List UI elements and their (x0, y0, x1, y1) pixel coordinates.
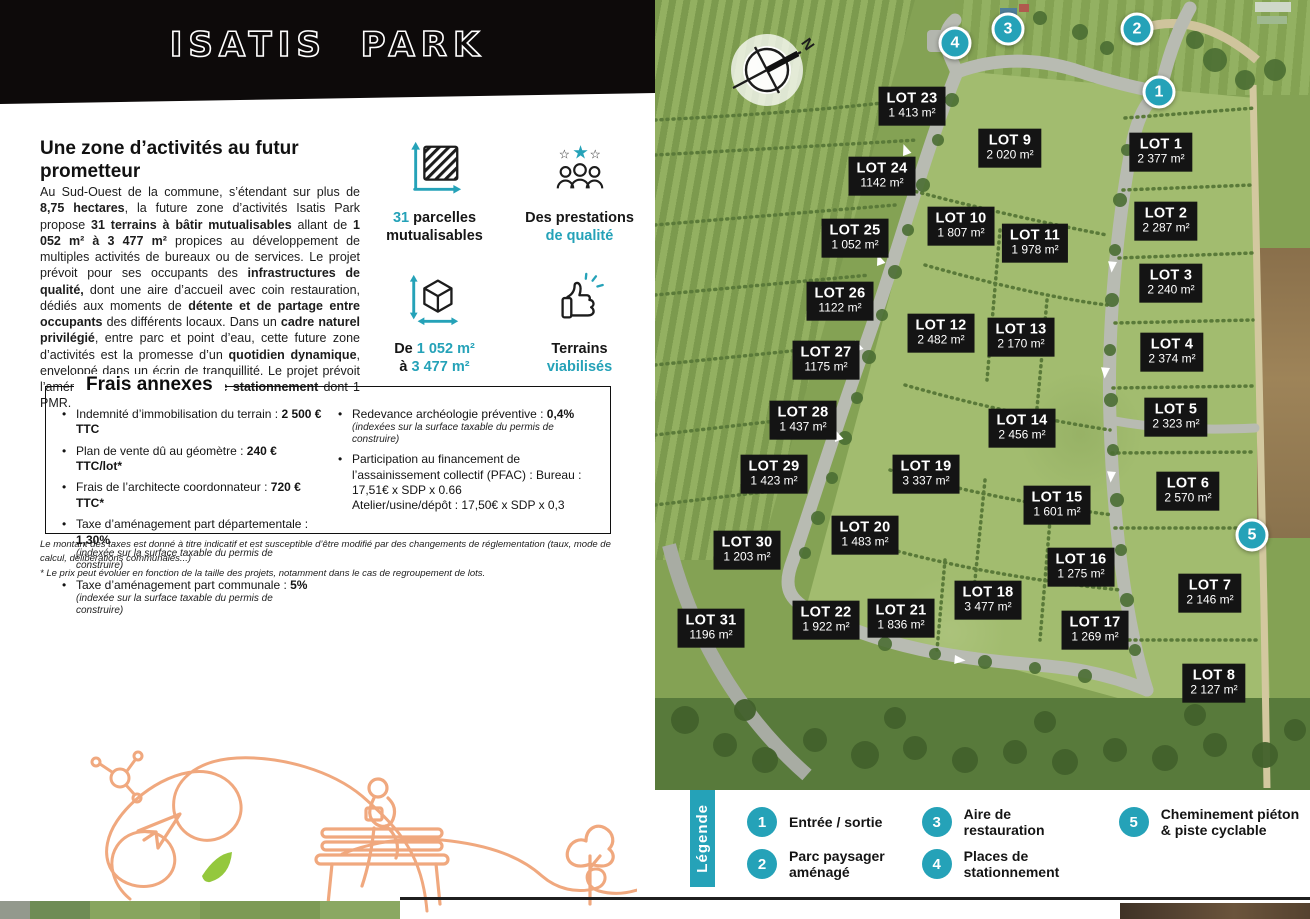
map-marker-3: 3 (992, 13, 1025, 46)
lot-label: LOT 111 978 m² (1002, 224, 1068, 263)
lot-label: LOT 92 020 m² (978, 129, 1041, 168)
intro-heading: Une zone d’activités au futur prometteur (40, 138, 350, 184)
legend: Légende 1Entrée / sortie2Parc paysager a… (655, 790, 1310, 900)
compass-icon: N (731, 34, 817, 106)
lot-label: LOT 101 807 m² (928, 207, 995, 246)
lot-label: LOT 142 456 m² (989, 409, 1056, 448)
page-divider-line (400, 897, 1310, 900)
feature-viabilises: Terrainsviabilisés (511, 271, 648, 376)
fees-box: Frais annexes Indemnité d’immobilisation… (45, 386, 611, 534)
map-marker-2: 2 (1121, 13, 1154, 46)
lot-label: LOT 211 836 m² (868, 599, 935, 638)
legend-item-3: 3Aire de restauration (922, 802, 1083, 842)
disclaimer-line1: Le montant des taxes est donné à titre i… (40, 538, 640, 567)
lot-label: LOT 183 477 m² (955, 581, 1022, 620)
lot-label: LOT 171 269 m² (1062, 611, 1129, 650)
fees-title: Frais annexes (74, 374, 225, 396)
leaf-shape (202, 852, 232, 882)
feature-surface: De 1 052 m²à 3 477 m² (366, 271, 503, 376)
svg-text:☆: ☆ (589, 147, 600, 161)
map-marker-1: 1 (1143, 76, 1176, 109)
legend-tab: Légende (690, 790, 715, 887)
lot-label: LOT 72 146 m² (1178, 574, 1241, 613)
thumb-up-icon (551, 271, 609, 334)
lot-label: LOT 311196 m² (678, 609, 745, 648)
plot-size-cube-icon (406, 271, 464, 334)
fee-item: Redevance archéologie préventive : 0,4%(… (336, 407, 598, 446)
legend-item-1: 1Entrée / sortie (747, 802, 886, 842)
lot-label: LOT 241142 m² (849, 157, 916, 196)
lot-label: LOT 52 323 m² (1144, 398, 1207, 437)
lot-label: LOT 301 203 m² (714, 531, 781, 570)
lot-label: LOT 291 423 m² (741, 455, 808, 494)
disclaimer: Le montant des taxes est donné à titre i… (40, 538, 640, 581)
legend-item-4: 4Places de stationnement (922, 844, 1083, 884)
lot-label: LOT 201 483 m² (832, 516, 899, 555)
page-title: ISATIS PARK (170, 25, 486, 79)
legend-items: 1Entrée / sortie2Parc paysager aménagé3A… (747, 802, 1310, 884)
lot-label: LOT 32 240 m² (1139, 264, 1202, 303)
lot-label: LOT 132 170 m² (988, 318, 1055, 357)
lot-label: LOT 122 482 m² (908, 314, 975, 353)
fee-item: Taxe d’aménagement part communale : 5%(i… (60, 578, 322, 617)
feature-label: De 1 052 m²à 3 477 m² (394, 340, 475, 376)
fees-right-column: Redevance archéologie préventive : 0,4%(… (336, 407, 598, 623)
lot-label: LOT 231 413 m² (879, 87, 946, 126)
map-marker-5: 5 (1236, 519, 1269, 552)
fee-item: Indemnité d’immobilisation du terrain : … (60, 407, 322, 438)
fees-left-column: Indemnité d’immobilisation du terrain : … (60, 407, 322, 623)
svg-text:★: ★ (572, 141, 588, 162)
area-icon (406, 140, 464, 203)
feature-label: Des prestationsde qualité (525, 209, 634, 245)
feature-grid: 31 parcellesmutualisables ☆ ★ ☆ (366, 140, 648, 377)
lot-label: LOT 193 337 m² (893, 455, 960, 494)
legend-title: Légende (694, 804, 711, 873)
left-panel: ISATIS PARK Une zone d’activités au futu… (0, 0, 655, 919)
site-map: N LOT 231 413 m²LOT 92 020 m²LOT 12 377 … (655, 0, 1310, 919)
feature-prestations: ☆ ★ ☆ Des prestationsde qualité (511, 140, 648, 245)
lot-label: LOT 62 570 m² (1156, 472, 1219, 511)
lot-label: LOT 151 601 m² (1024, 486, 1091, 525)
fee-item: Participation au financement de l’assain… (336, 452, 598, 513)
feature-label: 31 parcellesmutualisables (386, 209, 483, 245)
lot-label: LOT 82 127 m² (1182, 664, 1245, 703)
lot-label: LOT 271175 m² (793, 341, 860, 380)
svg-text:☆: ☆ (558, 147, 569, 161)
brochure-page: ISATIS PARK Une zone d’activités au futu… (0, 0, 1310, 919)
lot-label: LOT 281 437 m² (770, 401, 837, 440)
fee-item: Plan de vente dû au géomètre : 240 € TTC… (60, 444, 322, 475)
lot-label: LOT 42 374 m² (1140, 333, 1203, 372)
title-banner: ISATIS PARK (0, 0, 655, 104)
bottom-right-photo-strip (1120, 903, 1310, 919)
fee-item: Frais de l’architecte coordonnateur : 72… (60, 480, 322, 511)
disclaimer-line2: * Le prix peut évoluer en fonction de la… (40, 567, 640, 581)
decorative-line-art (22, 736, 637, 914)
lot-label: LOT 221 922 m² (793, 601, 860, 640)
legend-item-5: 5Cheminement piéton & piste cyclable (1119, 802, 1310, 842)
feature-parcelles: 31 parcellesmutualisables (366, 140, 503, 245)
lot-label: LOT 251 052 m² (822, 219, 889, 258)
quality-stars-people-icon: ☆ ★ ☆ (551, 140, 609, 203)
lot-label: LOT 161 275 m² (1048, 548, 1115, 587)
bottom-left-photo-strip (0, 901, 400, 919)
map-marker-4: 4 (939, 27, 972, 60)
feature-label: Terrainsviabilisés (547, 340, 612, 376)
lot-label: LOT 261122 m² (807, 282, 874, 321)
lot-label: LOT 22 287 m² (1134, 202, 1197, 241)
legend-item-2: 2Parc paysager aménagé (747, 844, 886, 884)
lot-label: LOT 12 377 m² (1129, 133, 1192, 172)
